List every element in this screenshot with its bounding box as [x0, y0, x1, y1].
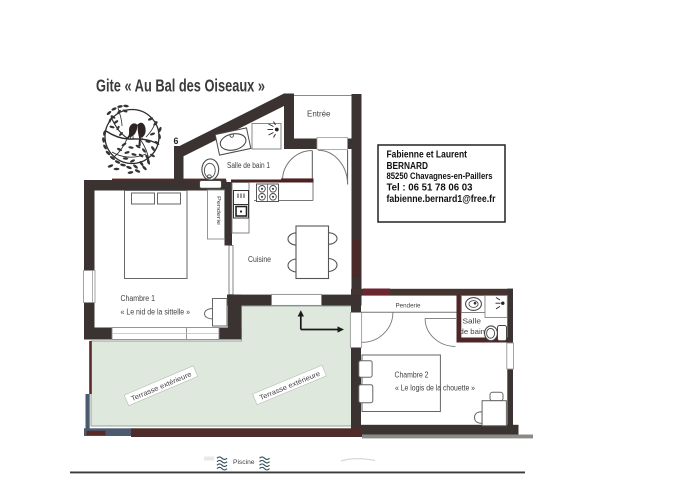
svg-text:Penderie: Penderie	[215, 196, 221, 225]
svg-text:Salle: Salle	[463, 317, 482, 326]
svg-text:Fabienne et Laurent: Fabienne et Laurent	[387, 150, 468, 161]
svg-text:fabienne.bernard1@free.fr: fabienne.bernard1@free.fr	[387, 194, 496, 205]
svg-text:Entrée: Entrée	[307, 110, 331, 119]
svg-text:de bain: de bain	[460, 327, 486, 336]
svg-text:Salle de bain 1: Salle de bain 1	[227, 161, 270, 170]
svg-text:Penderie: Penderie	[396, 303, 421, 310]
svg-text:Cuisine: Cuisine	[248, 255, 271, 264]
svg-text:85250 Chavagnes-en-Paillers: 85250 Chavagnes-en-Paillers	[387, 171, 493, 181]
svg-text:Chambre 2: Chambre 2	[395, 370, 429, 379]
svg-text:Gite « Au Bal des Oiseaux »: Gite « Au Bal des Oiseaux »	[96, 75, 265, 95]
svg-text:Tel : 06 51 78 06 03: Tel : 06 51 78 06 03	[387, 182, 473, 194]
svg-text:6: 6	[174, 136, 179, 146]
svg-text:« Le nid de la sittelle »: « Le nid de la sittelle »	[121, 308, 191, 317]
svg-text:Chambre 1: Chambre 1	[121, 294, 156, 303]
svg-text:« Le logis de la chouette »: « Le logis de la chouette »	[395, 384, 475, 393]
svg-text:Piscine: Piscine	[233, 459, 255, 466]
